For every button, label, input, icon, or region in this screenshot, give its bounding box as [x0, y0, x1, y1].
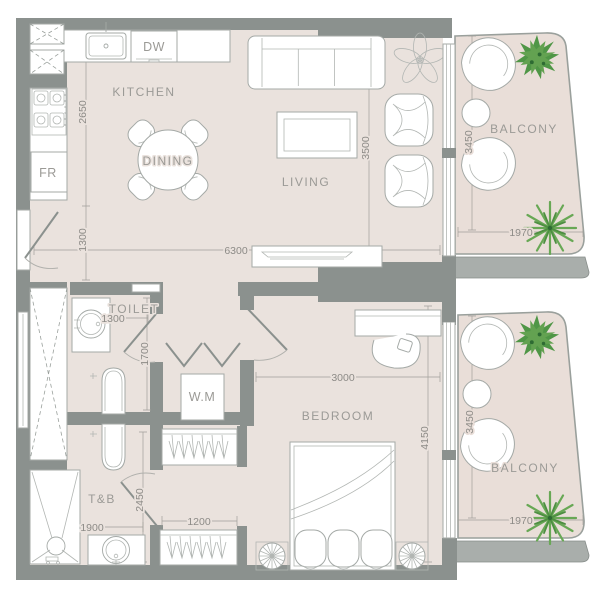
balcony-lower-slab	[455, 541, 589, 562]
balcony-upper-label: BALCONY	[490, 122, 558, 136]
wardrobe1-post-l	[152, 426, 162, 467]
dim-entry-width: 1300	[77, 228, 89, 252]
fridge: FR	[31, 152, 67, 192]
desk	[355, 310, 441, 336]
dim-balcony-lower-height: 3450	[464, 410, 476, 434]
side-table	[259, 543, 285, 569]
dim-kitchen-height: 2650	[77, 100, 89, 124]
dishwasher: DW	[131, 31, 177, 62]
dim-balcony-upper-height: 3450	[463, 130, 475, 154]
shower	[30, 470, 80, 565]
wardrobe1-post-r	[237, 426, 247, 467]
bedroom-left-wall	[240, 360, 254, 426]
armchair	[385, 155, 433, 207]
dim-balcony-upper-width: 1970	[509, 227, 533, 239]
coffee-table	[277, 112, 357, 158]
door-lintel	[132, 284, 160, 292]
bed	[290, 442, 395, 570]
dim-toilet-height: 1700	[139, 342, 151, 366]
toilet-vanity	[72, 298, 110, 352]
dim-living-height: 3500	[360, 136, 372, 160]
living-window	[442, 44, 456, 256]
wardrobe2-post-r	[237, 526, 247, 568]
tb-vanity	[88, 535, 145, 565]
dim-balcony-lower-width: 1970	[509, 515, 533, 527]
dim-bedroom-width: 3000	[331, 372, 355, 384]
floor-plan: DW FR	[0, 0, 605, 600]
bedroom-top-wall	[238, 282, 318, 296]
dim-tb-width: 1900	[80, 522, 104, 534]
bedroom-label: BEDROOM	[302, 409, 375, 423]
balcony-table	[463, 380, 491, 408]
left-wall	[16, 18, 30, 580]
tv-console	[252, 246, 382, 267]
sofa	[248, 36, 385, 89]
dishwasher-label: DW	[143, 40, 165, 54]
dining-label: DINING	[143, 154, 194, 168]
living-label: LIVING	[282, 175, 330, 189]
shaft-box-1	[30, 24, 64, 44]
kitchen-label: KITCHEN	[112, 85, 175, 99]
shaft-bottom-wall	[30, 460, 67, 470]
pillow	[328, 530, 359, 569]
balcony-upper-slab	[452, 257, 589, 278]
pillow	[295, 530, 326, 569]
window-pier-lower	[442, 538, 457, 580]
balcony-lower-label: BALCONY	[491, 461, 559, 475]
side-table	[399, 543, 425, 569]
pillow	[361, 530, 392, 569]
bedroom-door-post	[240, 296, 254, 310]
top-wall-thick	[318, 18, 452, 38]
desk-chair	[372, 334, 420, 368]
bedroom-window	[442, 302, 456, 538]
wardrobe-1	[162, 429, 237, 465]
wardrobe-2	[160, 530, 237, 565]
mid-slab	[318, 262, 452, 302]
wardrobe2-post-l	[150, 526, 160, 568]
side-window	[18, 312, 28, 428]
washing-machine-label: W.M	[189, 390, 216, 404]
tb-label: T&B	[88, 492, 116, 506]
dim-wardrobe-width: 1200	[187, 516, 211, 528]
dim-living-width: 6300	[224, 245, 248, 257]
balcony-table	[462, 99, 490, 127]
fridge-label: FR	[39, 166, 57, 180]
dim-bedroom-height: 4150	[419, 426, 431, 450]
armchair	[385, 94, 433, 146]
dim-tb-height: 2450	[134, 488, 146, 512]
tall-shaft	[30, 288, 67, 460]
floor-plan-svg: DW FR	[0, 0, 605, 600]
dim-toilet-width: 1300	[101, 313, 125, 325]
